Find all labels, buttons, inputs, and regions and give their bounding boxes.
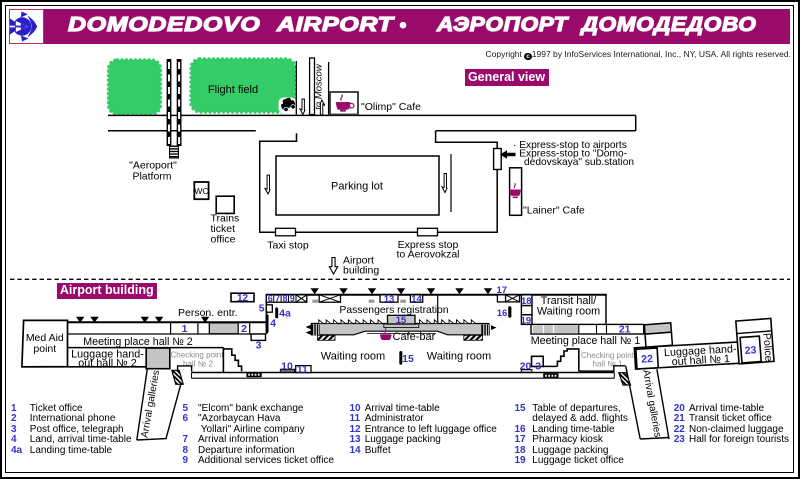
svg-text:2: 2 [241, 323, 247, 335]
svg-text:7: 7 [275, 294, 280, 304]
svg-text:Meeting place hall № 1: Meeting place hall № 1 [531, 335, 641, 347]
svg-text:Checking point: Checking point [581, 351, 635, 360]
svg-text:"Olimp" Cafe: "Olimp" Cafe [361, 101, 421, 113]
svg-text:Arrival galleries: Arrival galleries [640, 369, 663, 438]
svg-text:hall № 1: hall № 1 [593, 360, 623, 369]
svg-text:Passengers registration: Passengers registration [339, 305, 448, 316]
svg-text:hall № 2: hall № 2 [183, 359, 213, 368]
svg-text:4a: 4a [279, 307, 291, 319]
svg-text:19: 19 [521, 315, 532, 326]
svg-text:8: 8 [282, 294, 287, 304]
svg-text:3: 3 [535, 360, 541, 372]
svg-text:5: 5 [259, 302, 265, 314]
svg-text:Cafe-bar: Cafe-bar [393, 331, 436, 343]
svg-text:15: 15 [402, 353, 414, 365]
svg-text:13: 13 [384, 294, 395, 305]
svg-text:Flight field: Flight field [208, 84, 258, 96]
svg-text:6: 6 [268, 294, 273, 304]
svg-text:16: 16 [497, 308, 508, 319]
svg-text:Person. entr.: Person. entr. [178, 307, 238, 319]
svg-text:office: office [211, 234, 236, 246]
svg-text:"Lainer" Cafe: "Lainer" Cafe [523, 205, 585, 217]
svg-text:Police: Police [760, 333, 774, 363]
svg-text:Checking point: Checking point [171, 351, 225, 360]
svg-text:14: 14 [411, 294, 422, 305]
svg-text:to Aerovokzal: to Aerovokzal [396, 249, 459, 261]
svg-text:15: 15 [396, 315, 407, 326]
svg-text:Waiting room: Waiting room [321, 351, 385, 363]
svg-text:Platform: Platform [132, 171, 171, 183]
svg-text:WC: WC [194, 186, 208, 196]
svg-text:Meeting place hall № 2: Meeting place hall № 2 [83, 336, 193, 348]
svg-text:out hall № 1: out hall № 1 [671, 353, 730, 368]
svg-text:18: 18 [521, 296, 532, 307]
svg-text:building: building [343, 265, 379, 277]
svg-text:point: point [33, 343, 56, 355]
svg-text:Parking lot: Parking lot [331, 181, 383, 193]
svg-text:Waiting room: Waiting room [537, 306, 600, 318]
svg-text:dedovskaya" sub.station: dedovskaya" sub.station [524, 157, 634, 168]
svg-text:9: 9 [290, 294, 295, 304]
svg-text:23: 23 [744, 344, 757, 357]
svg-text:4: 4 [270, 318, 276, 330]
svg-text:Arrival galleries: Arrival galleries [139, 369, 162, 438]
svg-text:1: 1 [182, 323, 188, 335]
svg-text:21: 21 [619, 323, 631, 335]
svg-text:12: 12 [237, 293, 249, 304]
svg-text:11: 11 [297, 363, 308, 375]
svg-text:22: 22 [641, 353, 653, 366]
svg-text:Waiting room: Waiting room [427, 351, 491, 363]
svg-text:Taxi stop: Taxi stop [267, 240, 309, 252]
svg-text:3: 3 [256, 340, 262, 352]
svg-text:out hall № 2: out hall № 2 [78, 357, 136, 369]
